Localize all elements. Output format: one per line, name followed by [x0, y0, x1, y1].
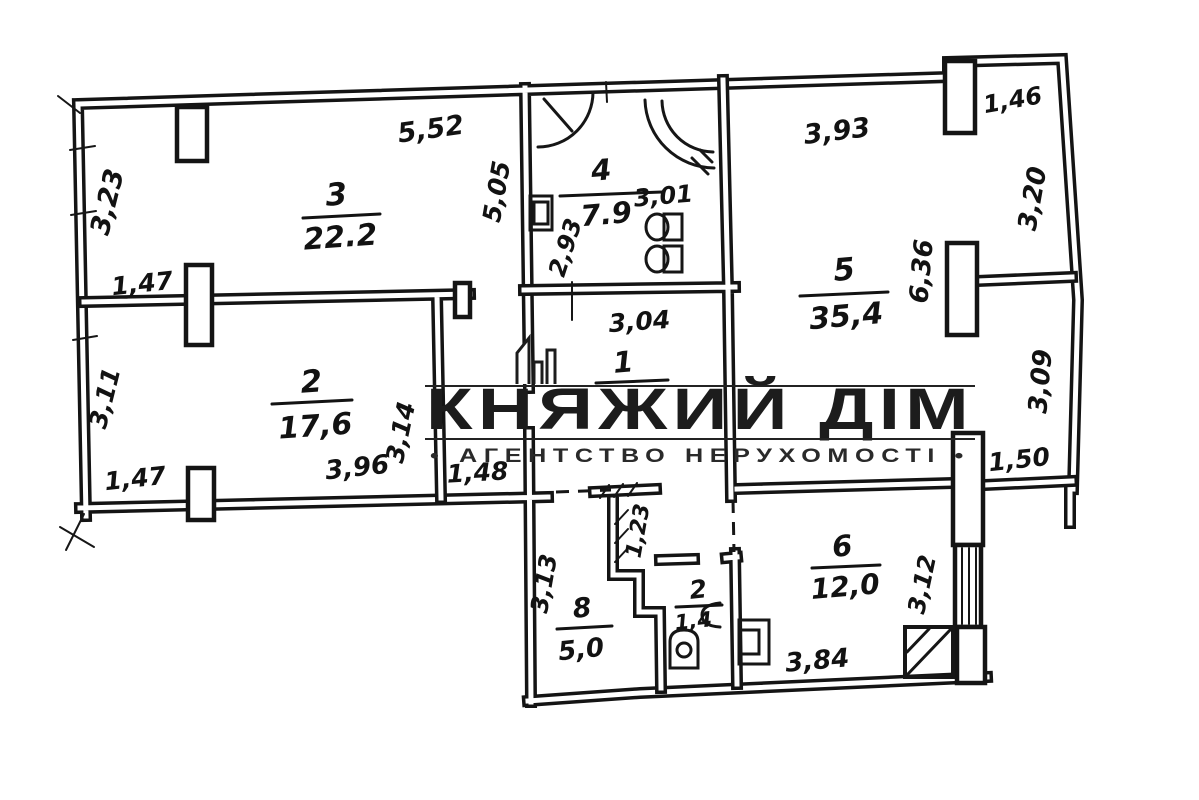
dim-bath-width: 3,01: [633, 180, 694, 213]
dim-bath-inner: 2,93: [543, 215, 588, 280]
appliance-diagonal2-icon: [907, 629, 929, 652]
watermark: КНЯЖИЙ ДІМ • АГЕНТСТВО НЕРУХОМОСТІ •: [425, 338, 975, 467]
dim-room2-left: 3,11: [83, 365, 126, 432]
room-8-area: 5,0: [557, 633, 606, 668]
column-room6-lower: [957, 627, 985, 683]
room-4-area: 7.9: [579, 195, 633, 233]
jamb-room3-door: [455, 283, 470, 317]
dim-room5-bottom-right: 1,50: [987, 442, 1051, 477]
room-5-number: 5: [832, 251, 857, 289]
bathtub-inner-arc-icon: [662, 101, 713, 152]
dim-room6-bottom: 3,84: [784, 643, 851, 678]
bathtub-arc-icon: [645, 100, 714, 168]
appliance-diagonal-icon: [907, 629, 951, 675]
column-room5: [947, 243, 977, 335]
room-wc-area: 1,4: [674, 607, 714, 635]
room-3-number: 3: [324, 176, 348, 213]
dim-room6-right: 3,12: [902, 552, 942, 616]
room-3-label: 3 22.2: [302, 176, 380, 257]
floor-plan: 3 22.2 4 7.9 5 35,4 2 17,6 1 6 12,0: [0, 0, 1199, 800]
room-5-area: 35,4: [808, 296, 885, 337]
wc-toilet-icon: [670, 630, 698, 668]
pier-room3-top: [177, 107, 207, 161]
room-2-label: 2 17,6: [272, 363, 353, 446]
dim-room5-right-upper: 3,20: [1013, 164, 1054, 232]
room-6-area: 12,0: [809, 567, 881, 606]
wc-toilet-bowl-icon: [677, 643, 691, 657]
room-8-number: 8: [571, 592, 593, 625]
room-2-area: 17,6: [277, 406, 353, 446]
dim-bath-left: 5,05: [477, 159, 516, 225]
pier-room3-room2: [186, 265, 212, 345]
kitchen-sink-icon: [739, 620, 769, 664]
watermark-subtitle: • АГЕНТСТВО НЕРУХОМОСТІ •: [430, 446, 970, 467]
dim-window-left-lower: 1,47: [103, 461, 168, 496]
bathtub-tap-icon: [692, 150, 712, 174]
room-wc-number: 2: [688, 574, 708, 605]
watermark-title: КНЯЖИЙ ДІМ: [426, 377, 974, 442]
dim-room3-top: 5,52: [396, 110, 466, 150]
room-6-label: 6 12,0: [809, 528, 881, 606]
sink-inner-icon: [534, 202, 548, 224]
dim-room5-column: 6,36: [904, 238, 939, 305]
dim-window-top-right: 1,46: [981, 81, 1044, 119]
room-5-label: 5 35,4: [800, 251, 888, 337]
room-6-number: 6: [831, 528, 854, 564]
room-3-area: 22.2: [302, 217, 378, 257]
dim-room3-left: 3,23: [85, 166, 131, 238]
pier-room2-bottom: [188, 468, 214, 520]
room-2-number: 2: [299, 363, 323, 400]
dim-room2-right: 3,14: [380, 399, 421, 465]
dim-room5-top: 3,93: [802, 112, 872, 151]
room-1-number: 1: [612, 344, 635, 380]
floor-plan-scan: 3 22.2 4 7.9 5 35,4 2 17,6 1 6 12,0: [0, 0, 1199, 800]
door-leaf-icon: [544, 99, 572, 131]
room-4-number: 4: [589, 152, 613, 188]
dim-room5-right-lower: 3,09: [1023, 348, 1058, 415]
room-8-label: 8 5,0: [557, 592, 612, 667]
pier-room5-top: [945, 61, 975, 133]
dim-hall-width: 3,04: [608, 305, 672, 338]
